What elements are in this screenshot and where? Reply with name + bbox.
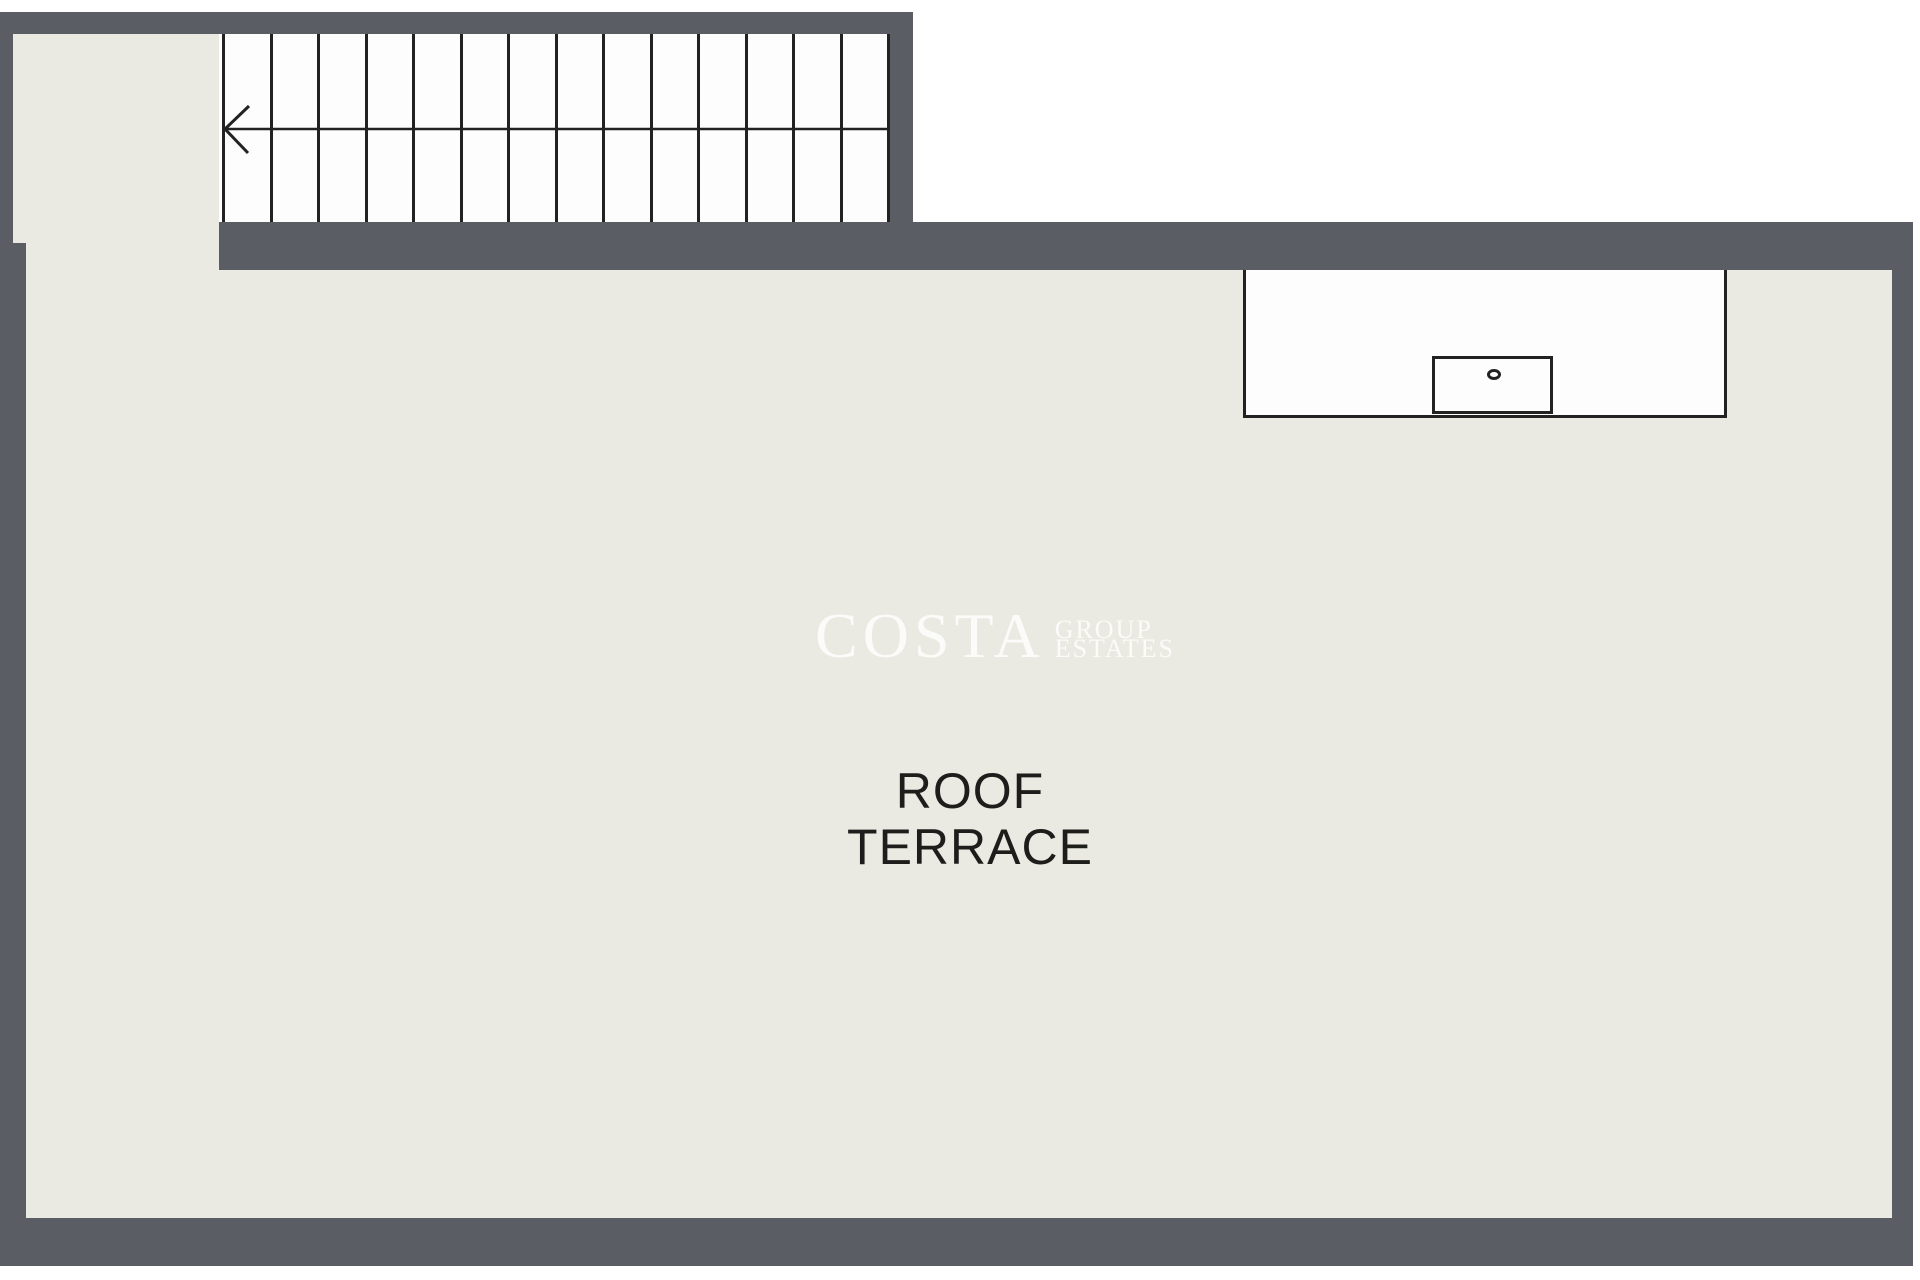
stair-tread <box>463 34 511 222</box>
stair-tread <box>320 34 368 222</box>
wall-left-lower <box>0 243 26 1266</box>
stair-tread <box>748 34 796 222</box>
stair-tread <box>605 34 653 222</box>
stair-landing-floor <box>13 34 219 270</box>
staircase <box>222 34 890 222</box>
wall-bottom <box>0 1218 1913 1266</box>
room-label-line1: ROOF <box>640 763 1300 819</box>
stair-tread <box>273 34 321 222</box>
wall-left-upper <box>0 12 13 243</box>
watermark: COSTA GROUP ESTATES <box>815 608 1175 664</box>
stair-tread <box>558 34 606 222</box>
stair-tread <box>700 34 748 222</box>
stair-tread <box>653 34 701 222</box>
floorplan-canvas: COSTA GROUP ESTATES ROOF TERRACE <box>0 0 1920 1280</box>
wall-right <box>1892 222 1913 1266</box>
watermark-secondary-line2: ESTATES <box>1055 639 1175 658</box>
stair-tread <box>368 34 416 222</box>
wall-room-top <box>219 222 1913 270</box>
room-label: ROOF TERRACE <box>640 763 1300 875</box>
sink-basin <box>1432 356 1553 414</box>
stair-tread <box>795 34 843 222</box>
watermark-secondary: GROUP ESTATES <box>1055 620 1175 658</box>
wall-top-stair-block <box>0 12 913 34</box>
drain-icon <box>1487 369 1501 380</box>
stair-tread <box>415 34 463 222</box>
room-label-line2: TERRACE <box>640 819 1300 875</box>
stair-tread <box>510 34 558 222</box>
stair-tread <box>225 34 273 222</box>
watermark-primary: COSTA <box>815 608 1045 664</box>
stair-tread <box>843 34 888 222</box>
